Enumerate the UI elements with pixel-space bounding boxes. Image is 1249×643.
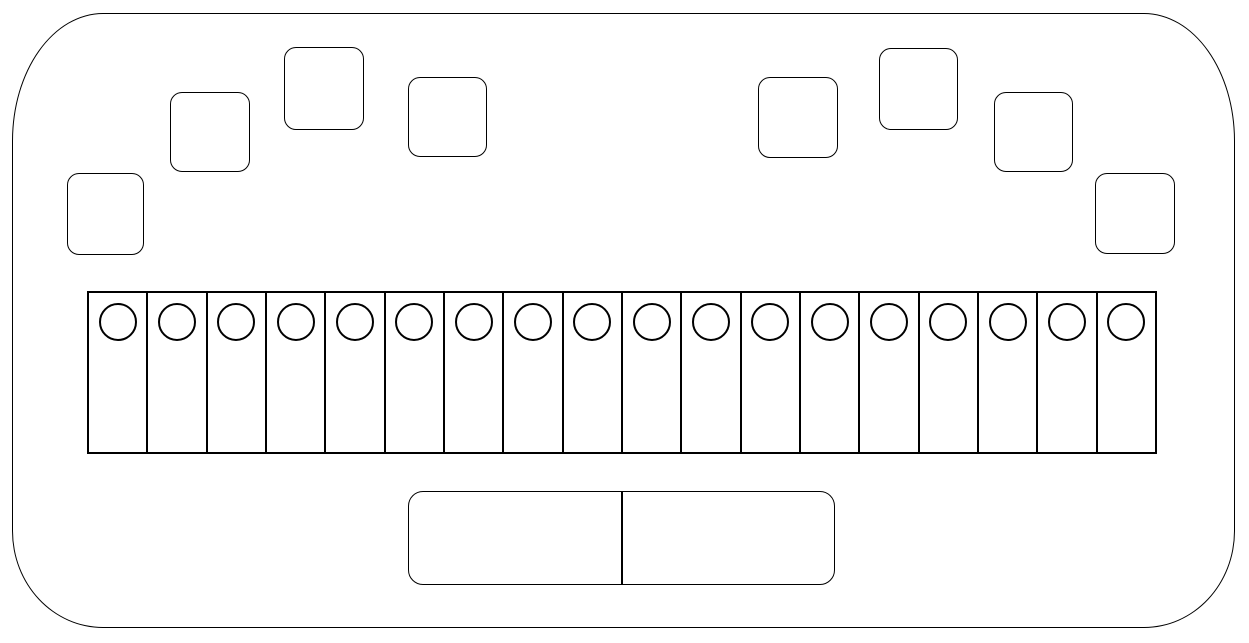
lever-key-18 <box>1096 293 1155 452</box>
key-circle-1 <box>99 303 137 341</box>
key-circle-15 <box>929 303 967 341</box>
key-circle-18 <box>1107 303 1145 341</box>
function-pad-7 <box>994 92 1073 172</box>
key-circle-4 <box>277 303 315 341</box>
lever-key-11 <box>680 293 739 452</box>
key-circle-10 <box>633 303 671 341</box>
lever-key-1 <box>89 293 146 452</box>
lever-key-2 <box>146 293 205 452</box>
key-circle-2 <box>158 303 196 341</box>
lever-key-16 <box>977 293 1036 452</box>
space-bar-segment-left <box>409 492 621 584</box>
function-pad-5 <box>758 77 838 158</box>
lever-key-15 <box>918 293 977 452</box>
lever-key-14 <box>858 293 917 452</box>
lever-key-6 <box>384 293 443 452</box>
lever-key-3 <box>206 293 265 452</box>
lever-key-17 <box>1036 293 1095 452</box>
key-circle-13 <box>811 303 849 341</box>
key-circle-17 <box>1048 303 1086 341</box>
function-pad-8 <box>1095 173 1175 254</box>
lever-key-12 <box>740 293 799 452</box>
key-circle-3 <box>217 303 255 341</box>
lever-key-13 <box>799 293 858 452</box>
lever-key-4 <box>265 293 324 452</box>
lever-key-5 <box>324 293 383 452</box>
lever-key-7 <box>443 293 502 452</box>
function-pad-2 <box>170 92 250 172</box>
key-circle-8 <box>514 303 552 341</box>
keyboard-diagram <box>0 0 1249 643</box>
lever-key-10 <box>621 293 680 452</box>
function-pad-3 <box>284 47 364 130</box>
lever-key-8 <box>502 293 561 452</box>
key-circle-16 <box>989 303 1027 341</box>
key-circle-9 <box>573 303 611 341</box>
lever-key-9 <box>562 293 621 452</box>
key-row <box>87 291 1157 454</box>
space-bar-segment-right <box>621 492 835 584</box>
function-pad-4 <box>408 77 487 157</box>
key-circle-11 <box>692 303 730 341</box>
space-bar <box>408 491 835 585</box>
key-circle-12 <box>751 303 789 341</box>
key-circle-5 <box>336 303 374 341</box>
key-circle-6 <box>395 303 433 341</box>
key-circle-14 <box>870 303 908 341</box>
function-pad-1 <box>67 173 144 255</box>
function-pad-6 <box>879 48 958 130</box>
key-circle-7 <box>455 303 493 341</box>
